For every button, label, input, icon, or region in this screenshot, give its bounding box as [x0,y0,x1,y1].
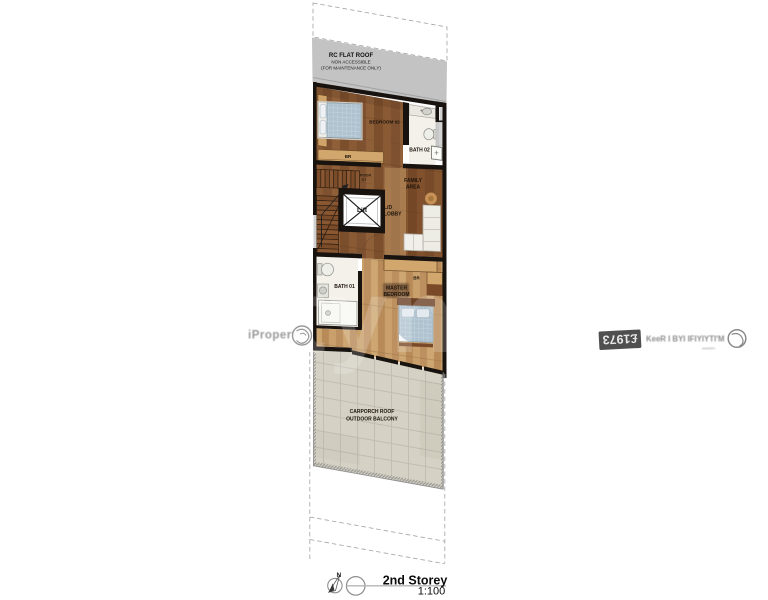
svg-text:CARPORCH ROOF: CARPORCH ROOF [350,409,395,415]
svg-text:BEDROOM 02: BEDROOM 02 [369,120,400,125]
svg-text:BR: BR [345,154,352,159]
svg-text:Lift: Lift [357,207,368,214]
svg-text:1:100: 1:100 [418,586,446,598]
svg-text:L/D: L/D [384,205,392,211]
svg-text:wwwtm: wwwtm [702,346,716,351]
svg-text:NON ACCESSIBLE: NON ACCESSIBLE [331,60,370,65]
svg-text:AREA: AREA [406,185,421,191]
svg-text:RC FLAT ROOF: RC FLAT ROOF [329,53,374,59]
svg-text:£1973: £1973 [602,331,637,347]
svg-text:OUTDOOR BALCONY: OUTDOOR BALCONY [346,417,398,423]
svg-text:(FOR MAINTENANCE ONLY): (FOR MAINTENANCE ONLY) [321,66,381,71]
svg-text:ST: ST [362,178,368,182]
svg-text:FAMILY: FAMILY [404,178,423,184]
svg-text:KeeR I BYI IFIYIYTI'M: KeeR I BYI IFIYIYTI'M [646,335,725,344]
svg-text:BATH 02: BATH 02 [409,148,430,154]
svg-text:LOBBY: LOBBY [384,212,402,218]
svg-text:PWDR: PWDR [360,174,372,178]
svg-text:tyn: tyn [291,258,458,375]
svg-text:N: N [337,572,342,579]
